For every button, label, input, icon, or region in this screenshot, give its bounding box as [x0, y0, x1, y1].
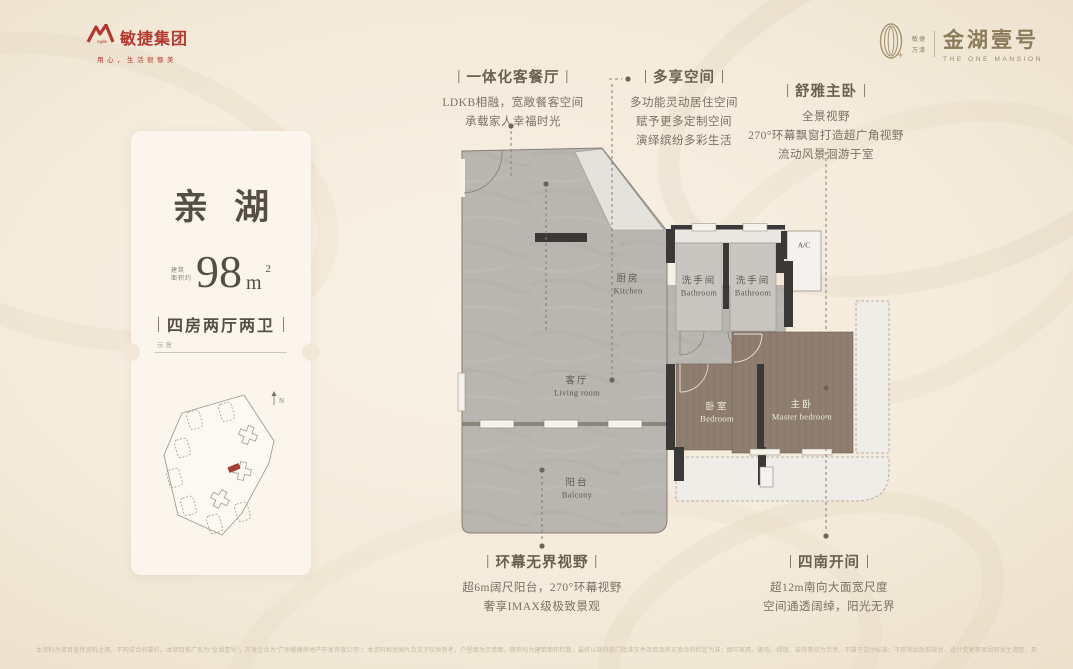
callout-panoramic-view: 环幕无界视野 超6m阔尺阳台，270°环幕视野 奢享IMAX级极致景观 — [462, 551, 622, 617]
callout-title: 环幕无界视野 — [495, 551, 588, 572]
layout-note: 示意 — [157, 339, 311, 349]
floor-plan: 厨房Kitchen 洗手间Bathroom 洗手间Bathroom 客厅Livi… — [440, 135, 896, 555]
window — [608, 420, 642, 428]
callout-master-bedroom: 舒雅主卧 全景视野 270°环幕飘窗打造超广角视野 流动风景洄游于室 — [748, 80, 904, 165]
room-label-balcony: 阳台Balcony — [562, 475, 592, 500]
callout-south-bays: 四南开间 超12m南向大面宽尺度 空间通透阔绰，阳光无界 — [763, 551, 895, 617]
room-label-bathroom2: 洗手间Bathroom — [735, 273, 771, 298]
callout-bar — [864, 84, 865, 97]
project-name-en: THE ONE MANSION — [943, 56, 1043, 63]
area-unit: m — [246, 274, 262, 292]
logo-divider — [934, 31, 935, 57]
callout-line: 承载家人幸福时光 — [442, 113, 583, 132]
wall — [674, 447, 684, 481]
callout-line: 超12m南向大面宽尺度 — [763, 579, 895, 598]
room-label-living: 客厅Living room — [554, 373, 600, 398]
callout-line: LDKB相融，宽敞餐客空间 — [442, 94, 583, 113]
callout-line: 演绎缤纷多彩生活 — [630, 132, 738, 151]
window — [750, 449, 780, 455]
project-name: 金湖壹号 — [943, 24, 1043, 54]
compass-label: N — [279, 397, 284, 405]
room-label-master: 主卧Master bedroom — [772, 397, 832, 422]
callout-line: 270°环幕飘窗打造超广角视野 — [748, 127, 904, 146]
area-labels: 建筑 面积约 — [171, 268, 192, 283]
callout-bar — [595, 555, 596, 568]
poster: Agile 敏捷集团 用心，生活很惬美 敏捷 万濠 金湖壹号 THE ONE M… — [0, 0, 1073, 669]
compass-north-icon: N — [272, 391, 285, 405]
callout-line: 超6m阔尺阳台，270°环幕视野 — [462, 579, 622, 598]
wall — [666, 364, 675, 450]
developer-tagline: 用心，生活很惬美 — [52, 54, 222, 64]
window — [544, 420, 578, 428]
callout-bar — [722, 70, 723, 83]
callout-bar — [790, 555, 791, 568]
area-value: 98 — [196, 252, 242, 292]
window — [802, 449, 832, 455]
area-superscript: 2 — [266, 254, 272, 284]
window — [458, 373, 465, 411]
callout-line: 流动风景洄游于室 — [748, 146, 904, 165]
project-logo: 敏捷 万濠 金湖壹号 THE ONE MANSION — [878, 22, 1043, 65]
layout-bar-right — [283, 317, 284, 332]
disclaimer-text: 本资料为项目宣传资料之用，不构成合同要约。本项目推广名为“金湖壹号”，开发企业为… — [36, 645, 1037, 654]
layout-text: 四房两厅两卫 — [167, 312, 275, 336]
wall — [666, 229, 675, 263]
callout-bar — [459, 70, 460, 83]
callout-title: 四南开间 — [798, 551, 860, 572]
area-label-1: 建筑 — [171, 268, 192, 275]
entry-opening — [459, 159, 465, 197]
callout-title: 多享空间 — [653, 66, 715, 87]
unit-info-card: 亲湖 建筑 面积约 98 m 2 四房两厅两卫 示意 — [131, 131, 311, 575]
callout-bar — [645, 70, 646, 83]
project-emblem-icon — [878, 22, 904, 65]
room-label-bedroom: 卧室Bedroom — [700, 399, 734, 424]
ac-label: A/C — [798, 241, 811, 250]
callout-living-dining: 一体化客餐厅 LDKB相融，宽敞餐客空间 承载家人幸福时光 — [442, 66, 583, 132]
wall — [671, 225, 785, 230]
layout-bar-left — [158, 317, 159, 332]
callout-flex-space: 多享空间 多功能灵动居住空间 赋予更多定制空间 演绎缤纷多彩生活 — [630, 66, 738, 151]
unit-layout: 四房两厅两卫 — [131, 312, 311, 336]
room-label-bathroom1: 洗手间Bathroom — [681, 273, 717, 298]
callout-title: 一体化客餐厅 — [467, 66, 560, 87]
callout-bar — [487, 555, 488, 568]
card-divider — [155, 352, 287, 353]
site-boundary — [164, 395, 274, 535]
developer-name: 敏捷集团 — [120, 25, 188, 49]
callout-title: 舒雅主卧 — [795, 80, 857, 101]
room-label-kitchen: 厨房Kitchen — [613, 271, 642, 296]
project-prefix-line2: 万濠 — [912, 45, 926, 54]
callout-line: 多功能灵动居住空间 — [630, 94, 738, 113]
window — [760, 467, 773, 487]
window — [480, 420, 514, 428]
wall — [723, 243, 729, 309]
wall — [757, 364, 764, 450]
project-prefix-line1: 敏捷 — [912, 34, 926, 43]
window — [692, 224, 716, 232]
callout-line: 空间通透阔绰，阳光无界 — [763, 598, 895, 617]
wall — [781, 231, 787, 259]
card-notch-right — [302, 343, 320, 361]
window — [743, 224, 767, 232]
unit-title: 亲湖 — [131, 179, 311, 230]
developer-logo: Agile 敏捷集团 用心，生活很惬美 — [52, 24, 222, 64]
unit-area: 建筑 面积约 98 m 2 — [131, 252, 311, 292]
wall — [784, 261, 793, 327]
bay-window-south — [676, 457, 889, 501]
callout-line: 全景视野 — [748, 108, 904, 127]
project-prefix: 敏捷 万濠 — [912, 34, 926, 54]
master-bedroom-floor — [732, 332, 853, 453]
agile-logo-icon: Agile — [86, 24, 116, 49]
callout-line: 赋予更多定制空间 — [630, 113, 738, 132]
agile-logo-text: Agile — [97, 39, 108, 44]
site-plan: N — [146, 383, 296, 568]
callout-bar — [867, 555, 868, 568]
callout-line: 奢享IMAX级极致景观 — [462, 598, 622, 617]
bay-window-east — [856, 301, 889, 453]
utility-strip — [671, 229, 785, 243]
area-label-2: 面积约 — [171, 276, 192, 283]
callout-bar — [567, 70, 568, 83]
wall — [535, 233, 587, 242]
card-notch-left — [122, 343, 140, 361]
callout-bar — [787, 84, 788, 97]
